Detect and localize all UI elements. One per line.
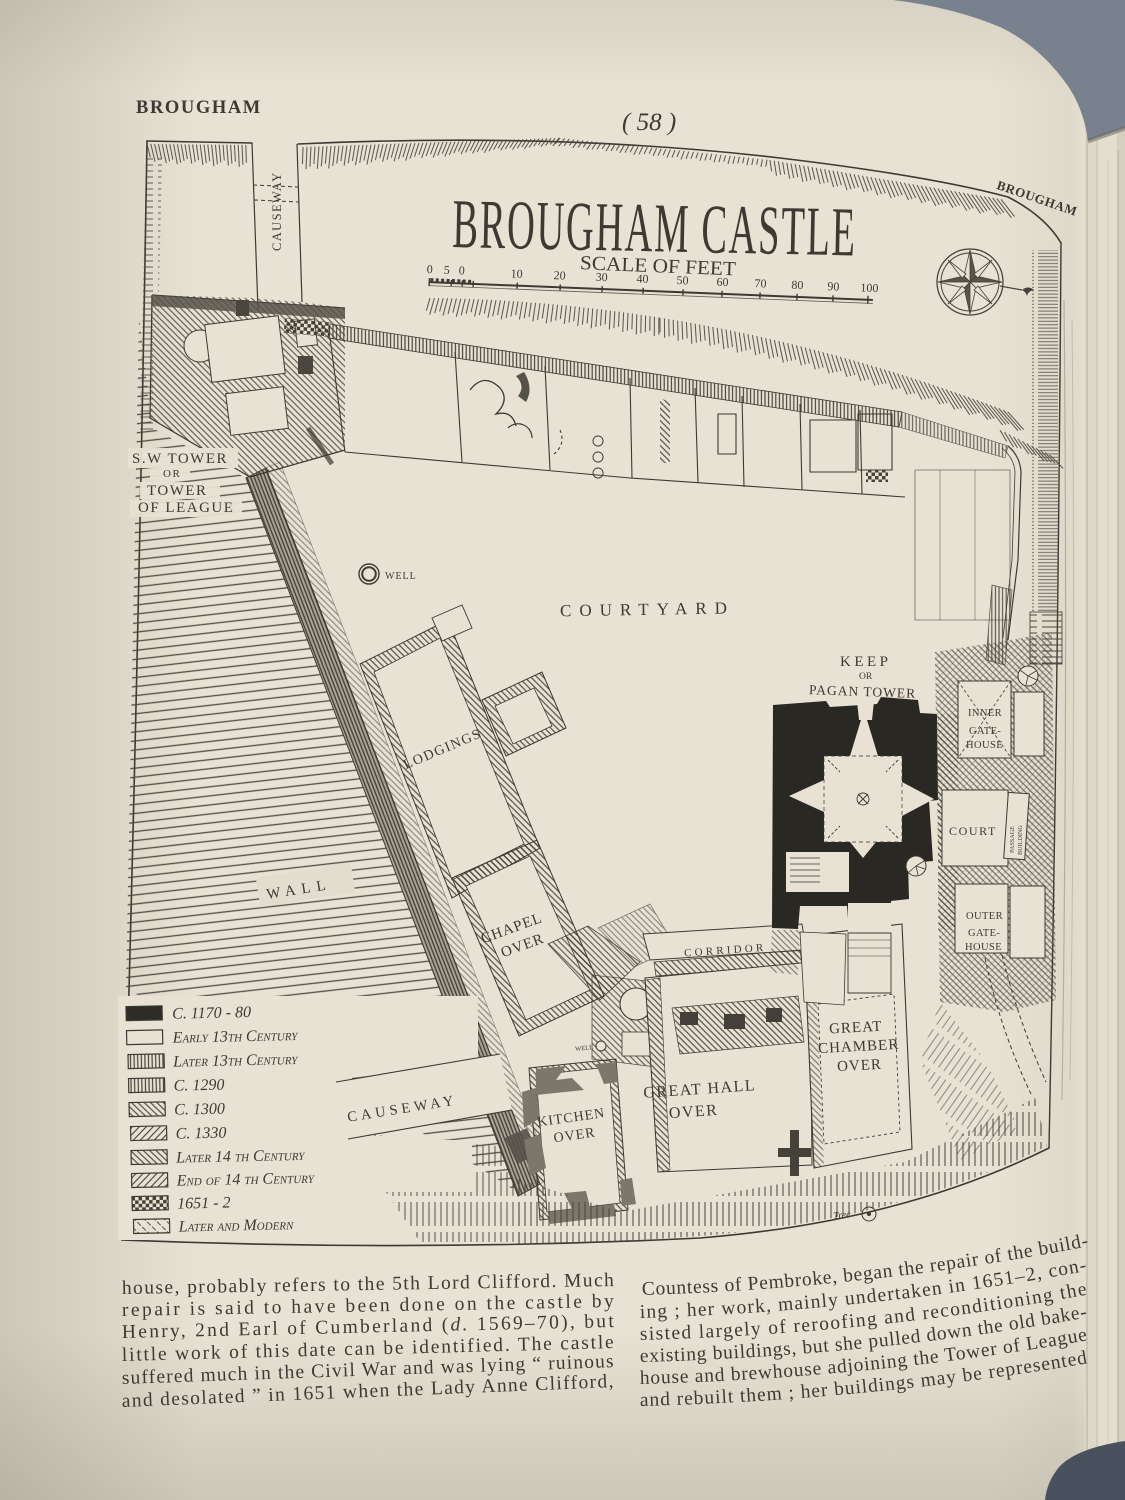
svg-text:S.W TOWER: S.W TOWER (132, 451, 228, 467)
svg-text:20: 20 (553, 268, 566, 282)
svg-text:OVER: OVER (668, 1102, 719, 1122)
svg-text:HOUSE: HOUSE (966, 740, 1003, 751)
svg-text:0: 0 (427, 262, 434, 276)
svg-text:Later 13th Century: Later 13th Century (172, 1051, 299, 1071)
svg-text:OR: OR (163, 468, 181, 480)
svg-text:BUILDING: BUILDING (1017, 825, 1024, 855)
svg-text:OVER: OVER (837, 1057, 883, 1075)
svg-text:GREAT: GREAT (829, 1019, 883, 1038)
svg-text:50: 50 (676, 273, 689, 287)
svg-text:1651 - 2: 1651 - 2 (177, 1194, 231, 1212)
svg-text:90: 90 (827, 279, 840, 293)
svg-text:TOWER: TOWER (147, 483, 208, 499)
svg-text:Tree: Tree (833, 1209, 852, 1222)
svg-text:60: 60 (716, 275, 729, 289)
svg-text:Later 14 th Century: Later 14 th Century (175, 1147, 306, 1167)
svg-text:80: 80 (791, 278, 804, 292)
svg-text:KEEP: KEEP (840, 654, 892, 670)
svg-text:C. 1300: C. 1300 (174, 1101, 225, 1119)
svg-text:HOUSE: HOUSE (965, 942, 1002, 953)
svg-text:0: 0 (458, 263, 465, 277)
svg-text:40: 40 (636, 271, 649, 285)
svg-text:C. 1330: C. 1330 (176, 1125, 227, 1143)
svg-text:5: 5 (443, 263, 450, 277)
svg-text:COURTYARD: COURTYARD (560, 598, 735, 620)
svg-text:CAUSEWAY: CAUSEWAY (270, 172, 284, 252)
svg-text:GATE-: GATE- (969, 726, 1001, 737)
svg-text:OF LEAGUE: OF LEAGUE (138, 500, 234, 516)
svg-text:Early 13th Century: Early 13th Century (171, 1027, 299, 1047)
svg-text:WELL: WELL (385, 571, 417, 582)
svg-text:100: 100 (860, 280, 879, 295)
svg-text:70: 70 (754, 276, 767, 290)
svg-text:End of 14 th Century: End of 14 th Century (175, 1170, 315, 1190)
svg-text:10: 10 (510, 266, 523, 280)
svg-text:COURT: COURT (949, 824, 997, 838)
svg-text:INNER: INNER (968, 708, 1002, 719)
svg-text:( 58 ): ( 58 ) (622, 109, 676, 136)
svg-text:30: 30 (595, 270, 608, 284)
svg-text:BROUGHAM: BROUGHAM (136, 98, 262, 118)
svg-text:OUTER: OUTER (966, 911, 1003, 922)
svg-text:OR: OR (859, 672, 873, 682)
svg-text:PASSAGE: PASSAGE (1009, 826, 1016, 853)
svg-text:GATE-: GATE- (968, 928, 1000, 939)
svg-text:C. 1290: C. 1290 (174, 1077, 225, 1095)
svg-text:Later and Modern: Later and Modern (177, 1216, 294, 1235)
svg-text:C. 1170 - 80: C. 1170 - 80 (172, 1004, 251, 1023)
